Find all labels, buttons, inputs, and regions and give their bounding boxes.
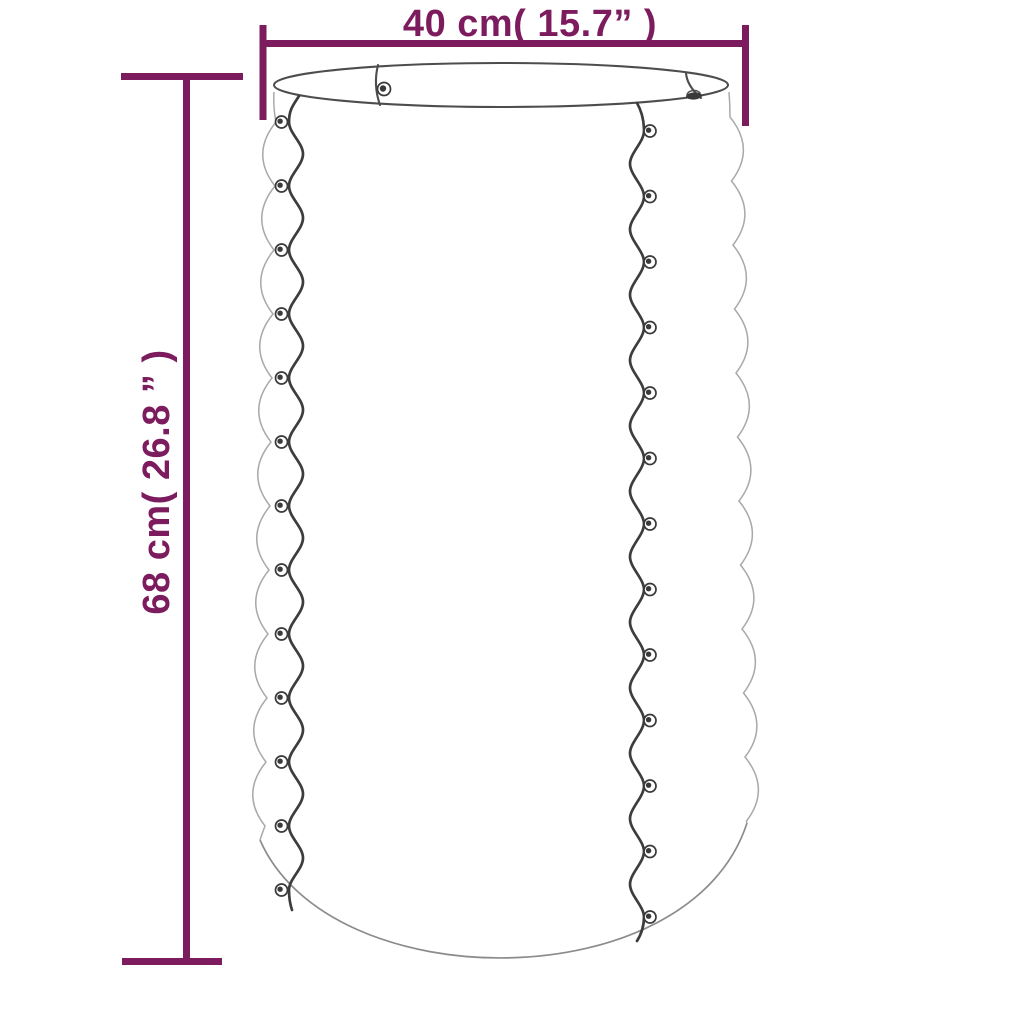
rim-rivet-left (378, 83, 391, 96)
bottom-edge (260, 823, 747, 958)
rivet (276, 692, 288, 704)
rivet (276, 372, 288, 384)
rivet (276, 820, 288, 832)
rivet (644, 387, 656, 399)
rivet (276, 628, 288, 640)
top-rim-ellipse (274, 63, 728, 107)
rivet (644, 191, 656, 203)
rivet (276, 500, 288, 512)
rivet (644, 846, 656, 858)
rivet (276, 564, 288, 576)
height-dimension-label: 68 cm( 26.8 ” ) (138, 349, 176, 614)
rivet (644, 649, 656, 661)
planter-body (253, 63, 759, 958)
rivet (644, 584, 656, 596)
rivet (644, 125, 656, 137)
right-panel-seam (630, 103, 644, 941)
rivet (276, 436, 288, 448)
rivet (644, 453, 656, 465)
width-dimension-label: 40 cm( 15.7” ) (403, 5, 657, 43)
rivet (644, 518, 656, 530)
right-corrugated-edge (729, 92, 758, 823)
rivet (276, 244, 288, 256)
rivet (644, 256, 656, 268)
rivet (276, 116, 288, 128)
rivet (276, 884, 288, 896)
right-rivet-column (644, 125, 656, 923)
rivet (644, 322, 656, 334)
rivet (644, 715, 656, 727)
left-rivet-column (276, 116, 288, 896)
rivet (276, 308, 288, 320)
rivet (644, 780, 656, 792)
rivet (644, 911, 656, 923)
rivet (276, 180, 288, 192)
diagram-canvas: 40 cm( 15.7” ) 68 cm( 26.8 ” ) (0, 0, 1024, 1024)
left-panel-seam (289, 96, 303, 910)
rivet (276, 756, 288, 768)
left-corrugated-edge (253, 92, 276, 840)
